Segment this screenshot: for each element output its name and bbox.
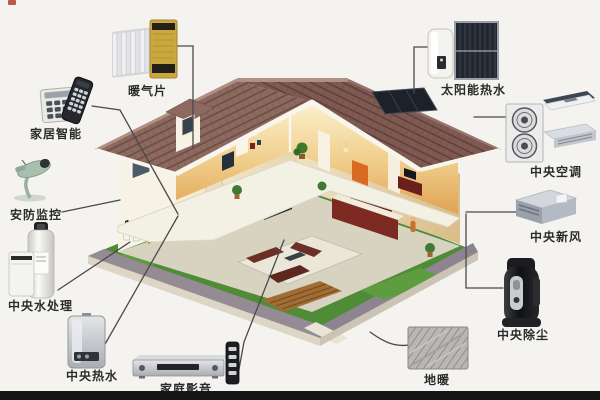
corner-artifact	[8, 0, 16, 5]
central-vacuum-unit-icon	[502, 258, 541, 327]
ceiling-cassette-icon	[543, 91, 595, 110]
water-tank-icon	[428, 29, 453, 78]
label-central-ac: 中央空调	[530, 163, 582, 180]
solar-collector-panel-icon	[455, 22, 498, 79]
label-smart-home: 家居智能	[30, 125, 82, 142]
yellow-radiator-icon	[150, 20, 177, 78]
connector-security	[62, 200, 120, 212]
av-receiver-icon	[133, 355, 229, 379]
label-water-treatment: 中央水处理	[8, 297, 73, 314]
label-solar: 太阳能热水	[441, 81, 506, 98]
label-radiator: 暖气片	[128, 82, 167, 99]
security-camera-icon	[14, 157, 52, 201]
water-softener-icon	[9, 252, 34, 296]
label-hot-water: 中央热水	[66, 367, 118, 384]
person-figure	[410, 216, 415, 232]
wall-boiler-icon	[68, 313, 105, 368]
diagram-canvas: 暖气片 家居智能 安防监控 中央水处理 中央热水 家庭影音 地暖 中央除尘 中央…	[0, 0, 600, 400]
duct-unit-icon	[544, 124, 596, 148]
white-radiator-icon	[112, 27, 150, 78]
av-remote-icon	[226, 342, 239, 384]
label-security: 安防监控	[10, 206, 62, 223]
ac-outdoor-unit-icon	[506, 104, 543, 162]
connector-floor-heating	[370, 332, 409, 345]
bottom-border-bar	[0, 391, 600, 400]
label-floor-heating: 地暖	[424, 371, 450, 388]
label-vacuum: 中央除尘	[497, 326, 549, 343]
house-illustration	[88, 80, 500, 346]
heating-pipe-coil-photo-icon	[408, 327, 468, 369]
fresh-air-ventilator-icon	[516, 190, 576, 224]
label-fresh-air: 中央新风	[530, 228, 582, 245]
connector-solar	[414, 47, 429, 93]
